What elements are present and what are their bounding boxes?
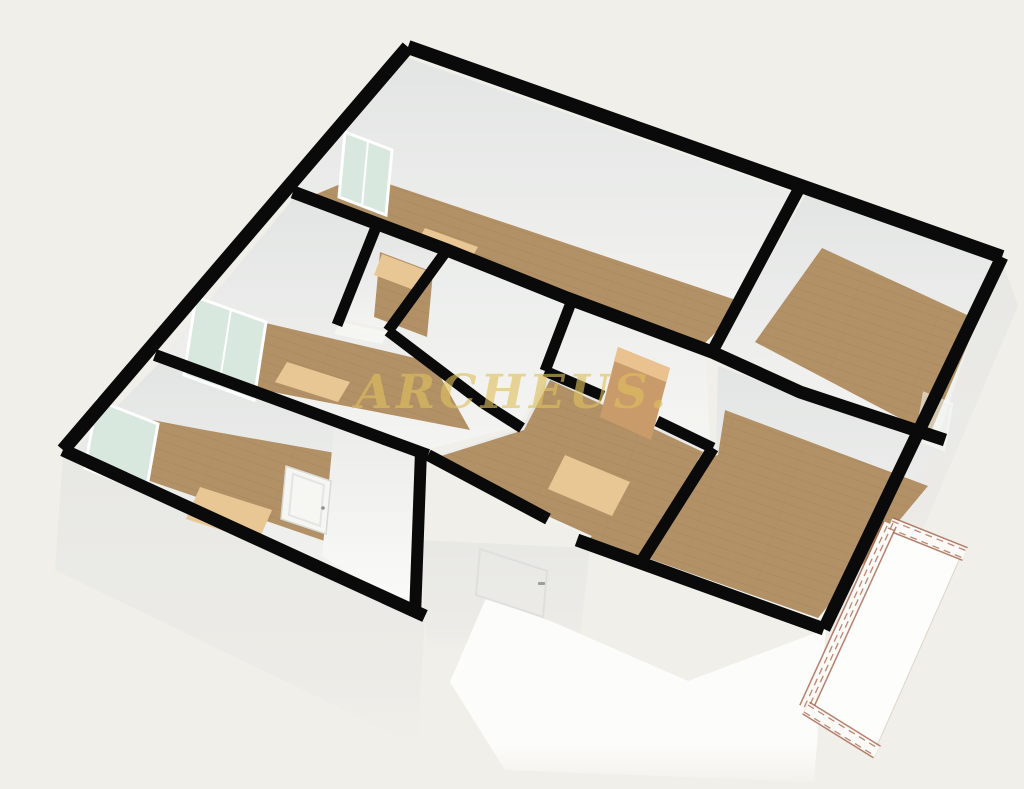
door-handle-icon [321,506,325,510]
floor-plan-render: ARCHEUS. [0,0,1024,789]
watermark-text: ARCHEUS. [352,365,671,420]
entrance-door-handle-icon [538,582,545,585]
floor-plan-canvas: ARCHEUS. [0,0,1024,789]
wall-bottom-left-room-right [415,451,421,616]
exterior-face-front-white [450,598,826,782]
